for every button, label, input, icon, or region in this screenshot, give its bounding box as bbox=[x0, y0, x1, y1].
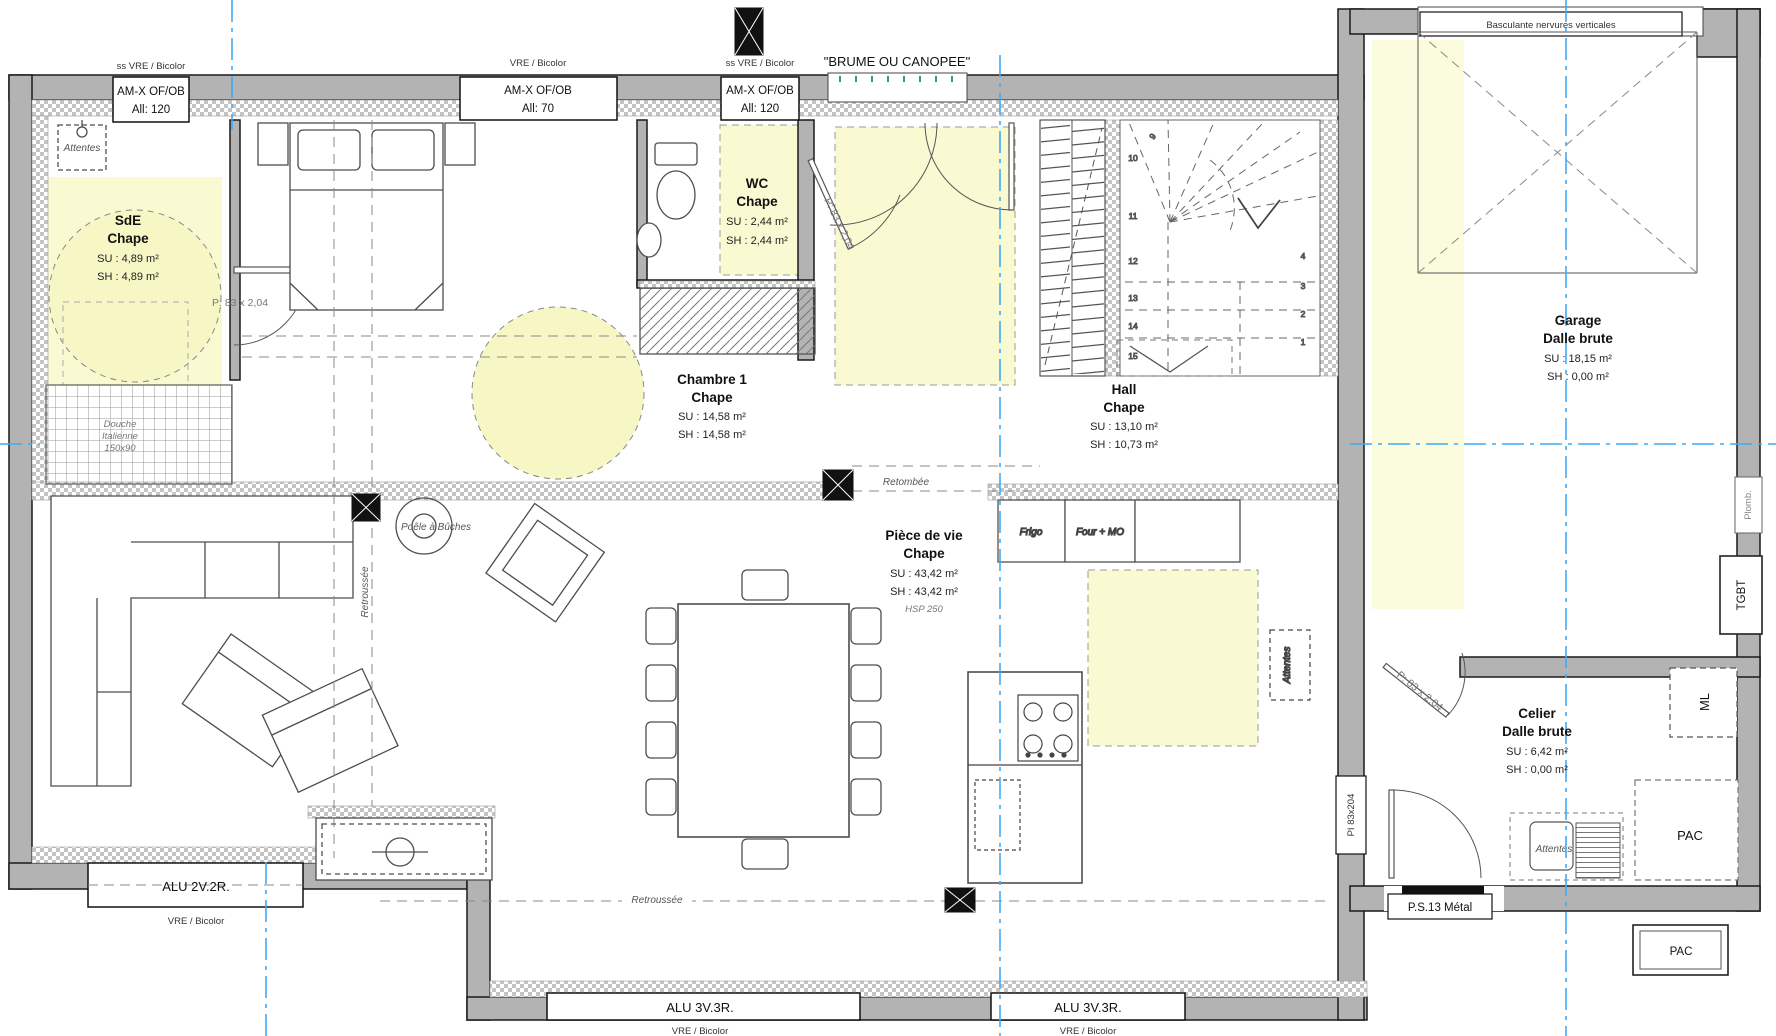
pac-celier-label: PAC bbox=[1677, 828, 1703, 843]
piece-floor: Chape bbox=[903, 546, 945, 561]
douche-line3: 150x90 bbox=[104, 443, 136, 454]
stair-step-4: 4 bbox=[1301, 251, 1306, 261]
chambre1-name: Chambre 1 bbox=[677, 372, 747, 387]
stair-step-11: 11 bbox=[1129, 211, 1138, 221]
wc-name: WC bbox=[746, 176, 769, 191]
chambre1-floor: Chape bbox=[691, 390, 733, 405]
sde-su: SU : 4,89 m² bbox=[97, 253, 159, 265]
window1-name: AM-X OF/OB bbox=[117, 86, 185, 98]
staircase: 10 11 12 13 14 15 9 4 3 2 1 bbox=[1040, 120, 1320, 376]
tgbt-label: TGBT bbox=[1736, 580, 1748, 611]
room-garage: Garage Dalle brute SU : 18,15 m² SH : 0,… bbox=[1543, 313, 1613, 383]
window2-allege: All: 70 bbox=[522, 103, 554, 115]
hall-floor: Chape bbox=[1103, 400, 1145, 415]
wc-su: SU : 2,44 m² bbox=[726, 216, 788, 228]
door-pi83-label: PI 83x204 bbox=[1346, 794, 1357, 837]
sde-sh: SH : 4,89 m² bbox=[97, 271, 159, 283]
celier-name: Celier bbox=[1518, 706, 1556, 721]
room-chambre1: Chambre 1 Chape SU : 14,58 m² SH : 14,58… bbox=[677, 372, 747, 441]
furniture-living bbox=[51, 496, 881, 880]
washer-label: ML bbox=[1697, 693, 1712, 711]
sde-name: SdE bbox=[115, 213, 141, 228]
douche-line2: Italienne bbox=[102, 431, 138, 442]
piece-su: SU : 43,42 m² bbox=[890, 568, 958, 580]
wc-floor: Chape bbox=[736, 194, 778, 209]
garage-sh: SH : 0,00 m² bbox=[1547, 371, 1609, 383]
stair-step-3: 3 bbox=[1301, 281, 1306, 291]
window3-tag: ss VRE / Bicolor bbox=[726, 58, 795, 69]
alu2-tag: VRE / Bicolor bbox=[168, 916, 225, 927]
alu3b-label: ALU 3V.3R. bbox=[1054, 1000, 1121, 1015]
stair-step-10: 10 bbox=[1128, 153, 1138, 163]
room-celier: Celier Dalle brute SU : 6,42 m² SH : 0,0… bbox=[1502, 706, 1572, 776]
stair-step-14: 14 bbox=[1128, 321, 1138, 331]
stair-step-1: 1 bbox=[1301, 337, 1306, 347]
sde-floor: Chape bbox=[107, 231, 149, 246]
stair-step-2: 2 bbox=[1301, 309, 1306, 319]
hall-sh: SH : 10,73 m² bbox=[1090, 439, 1158, 451]
celier-sh: SH : 0,00 m² bbox=[1506, 764, 1568, 776]
retombee-label: Retombée bbox=[883, 477, 930, 488]
kitchen-attentes-label: Attentes bbox=[1282, 647, 1293, 685]
window3-allege: All: 120 bbox=[741, 103, 779, 115]
window1-allege: All: 120 bbox=[132, 104, 170, 116]
alu3a-label: ALU 3V.3R. bbox=[666, 1000, 733, 1015]
piece-hsp-note: HSP 250 bbox=[905, 604, 943, 615]
garage-door-label: Basculante nervures verticales bbox=[1486, 20, 1616, 31]
window2-tag: VRE / Bicolor bbox=[510, 58, 567, 69]
garage-name: Garage bbox=[1555, 313, 1602, 328]
wc-sh: SH : 2,44 m² bbox=[726, 235, 788, 247]
plumbing-label: Plomb. bbox=[1743, 490, 1754, 520]
door-p83-chambre: P: 83 x 2,04 bbox=[212, 297, 268, 309]
fridge-label: Frigo bbox=[1020, 527, 1043, 538]
celier-su: SU : 6,42 m² bbox=[1506, 746, 1568, 758]
oven-micro-label: Four + MO bbox=[1076, 527, 1124, 538]
canopy-label: "BRUME OU CANOPEE" bbox=[824, 54, 971, 69]
window1-tag: ss VRE / Bicolor bbox=[117, 61, 186, 72]
door-p83-celier: P: 83 x 2,04 bbox=[1394, 669, 1445, 714]
garage-su: SU : 18,15 m² bbox=[1544, 353, 1612, 365]
stair-step-12: 12 bbox=[1128, 256, 1138, 266]
douche-line1: Douche bbox=[104, 419, 137, 430]
room-hall: Hall Chape SU : 13,10 m² SH : 10,73 m² bbox=[1090, 382, 1158, 451]
stair-step-15: 15 bbox=[1128, 351, 1138, 361]
window2-name: AM-X OF/OB bbox=[504, 85, 572, 97]
garage-floor: Dalle brute bbox=[1543, 331, 1613, 346]
ps13-door-label: P.S.13 Métal bbox=[1408, 902, 1472, 914]
hall-name: Hall bbox=[1112, 382, 1137, 397]
retroussee-vertical-label: Retroussée bbox=[360, 566, 371, 618]
alu3b-tag: VRE / Bicolor bbox=[1060, 1026, 1117, 1036]
hall-su: SU : 13,10 m² bbox=[1090, 421, 1158, 433]
sde-attentes-label: Attentes bbox=[63, 143, 101, 154]
alu2-label: ALU 2V.2R. bbox=[162, 879, 229, 894]
chambre1-sh: SH : 14,58 m² bbox=[678, 429, 746, 441]
retroussee-horizontal-label: Retroussée bbox=[631, 895, 683, 906]
room-piece-de-vie: Pièce de vie Chape SU : 43,42 m² SH : 43… bbox=[885, 528, 963, 615]
alu3a-tag: VRE / Bicolor bbox=[672, 1026, 729, 1036]
floor-plan: Basculante nervures verticales ss VRE / … bbox=[0, 0, 1776, 1036]
poele-label: Poêle à Bûches bbox=[401, 522, 471, 533]
window3-name: AM-X OF/OB bbox=[726, 85, 794, 97]
stair-step-13: 13 bbox=[1128, 293, 1138, 303]
chambre1-su: SU : 14,58 m² bbox=[678, 411, 746, 423]
shower-note: Douche Italienne 150x90 bbox=[102, 419, 138, 454]
piece-sh: SH : 43,42 m² bbox=[890, 586, 958, 598]
celier-floor: Dalle brute bbox=[1502, 724, 1572, 739]
piece-name: Pièce de vie bbox=[885, 528, 963, 543]
pac-exterior-label: PAC bbox=[1670, 946, 1693, 958]
